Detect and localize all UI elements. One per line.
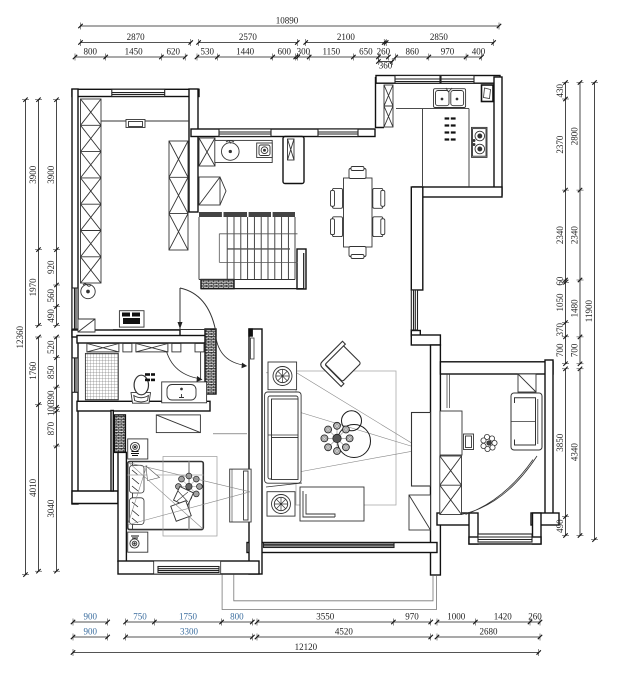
svg-text:2850: 2850 [430, 32, 449, 42]
svg-text:490: 490 [555, 519, 565, 533]
svg-text:360: 360 [379, 61, 393, 71]
svg-text:520: 520 [46, 340, 56, 354]
svg-text:850: 850 [46, 365, 56, 379]
svg-text:3900: 3900 [28, 165, 38, 184]
svg-text:2800: 2800 [570, 127, 580, 146]
svg-text:650: 650 [359, 47, 373, 57]
svg-text:2340: 2340 [555, 226, 565, 245]
svg-text:1150: 1150 [322, 47, 340, 57]
svg-text:700: 700 [570, 343, 580, 357]
svg-text:800: 800 [230, 612, 244, 622]
svg-text:370: 370 [555, 322, 565, 336]
svg-text:970: 970 [441, 47, 455, 57]
svg-text:12360: 12360 [15, 325, 25, 348]
svg-text:1000: 1000 [447, 612, 466, 622]
svg-text:3300: 3300 [180, 627, 199, 637]
svg-text:560: 560 [46, 289, 56, 303]
svg-text:3550: 3550 [316, 612, 335, 622]
svg-text:1970: 1970 [28, 278, 38, 297]
svg-text:600: 600 [277, 47, 291, 57]
svg-text:3040: 3040 [46, 499, 56, 517]
svg-text:900: 900 [84, 612, 98, 622]
svg-text:860: 860 [405, 47, 419, 57]
svg-text:3850: 3850 [555, 433, 565, 452]
svg-text:620: 620 [167, 47, 181, 57]
svg-text:2870: 2870 [127, 32, 146, 42]
svg-text:490: 490 [46, 309, 56, 323]
svg-text:1440: 1440 [236, 47, 255, 57]
svg-text:430: 430 [555, 84, 565, 98]
svg-text:1480: 1480 [570, 299, 580, 318]
svg-text:300: 300 [297, 47, 311, 57]
svg-text:1050: 1050 [555, 293, 565, 312]
svg-text:390: 390 [46, 390, 56, 404]
svg-text:4010: 4010 [28, 478, 38, 497]
svg-text:870: 870 [46, 421, 56, 435]
svg-text:800: 800 [84, 47, 98, 57]
svg-text:10890: 10890 [276, 16, 299, 26]
svg-text:2340: 2340 [570, 226, 580, 245]
svg-text:900: 900 [84, 627, 98, 637]
svg-text:530: 530 [200, 47, 214, 57]
svg-text:700: 700 [555, 343, 565, 357]
svg-text:2100: 2100 [337, 32, 356, 42]
svg-text:970: 970 [405, 612, 419, 622]
svg-text:920: 920 [46, 260, 56, 274]
svg-text:1750: 1750 [179, 612, 198, 622]
svg-text:100: 100 [46, 402, 56, 416]
svg-text:4340: 4340 [570, 443, 580, 462]
svg-text:1420: 1420 [494, 612, 513, 622]
svg-text:4520: 4520 [335, 627, 354, 637]
svg-text:11900: 11900 [584, 300, 594, 323]
svg-text:1450: 1450 [125, 47, 144, 57]
svg-text:2370: 2370 [555, 135, 565, 154]
svg-text:2570: 2570 [239, 32, 258, 42]
svg-text:2680: 2680 [480, 627, 499, 637]
svg-text:1760: 1760 [28, 361, 38, 380]
svg-text:750: 750 [133, 612, 147, 622]
svg-text:3900: 3900 [46, 165, 56, 184]
svg-text:12120: 12120 [295, 642, 318, 652]
